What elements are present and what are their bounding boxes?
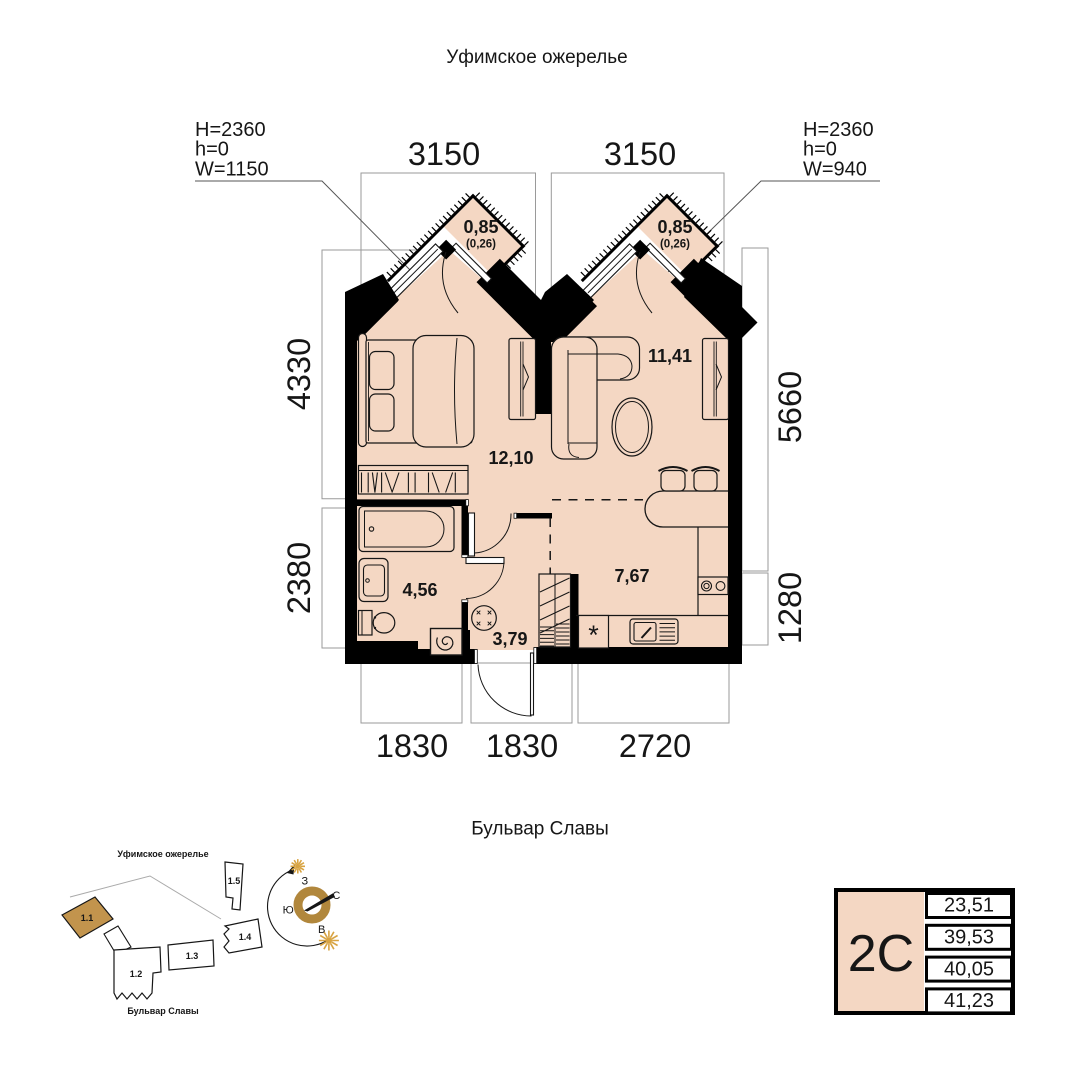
svg-text:H=2360: H=2360: [195, 119, 266, 141]
svg-text:Уфимское ожерелье: Уфимское ожерелье: [446, 47, 628, 68]
svg-text:(0,26): (0,26): [466, 239, 496, 251]
svg-text:39,53: 39,53: [944, 927, 994, 949]
svg-text:1830: 1830: [486, 728, 558, 764]
svg-text:3,79: 3,79: [492, 629, 527, 649]
svg-text:Бульвар Славы: Бульвар Славы: [127, 1006, 199, 1016]
svg-text:12,10: 12,10: [488, 448, 533, 468]
svg-text:2С: 2С: [848, 925, 914, 983]
svg-text:h=0: h=0: [195, 139, 229, 161]
svg-text:11,41: 11,41: [648, 346, 692, 366]
svg-text:*: *: [588, 620, 599, 650]
svg-text:3150: 3150: [604, 136, 676, 172]
svg-text:H=2360: H=2360: [803, 119, 874, 141]
svg-text:Уфимское ожерелье: Уфимское ожерелье: [117, 849, 208, 859]
svg-text:С: С: [332, 890, 340, 902]
svg-text:5660: 5660: [772, 371, 808, 443]
svg-text:В: В: [318, 924, 325, 936]
svg-text:1830: 1830: [376, 728, 448, 764]
svg-text:23,51: 23,51: [944, 895, 994, 917]
svg-text:(0,26): (0,26): [660, 239, 690, 251]
svg-text:0,85: 0,85: [657, 217, 692, 237]
svg-text:1.1: 1.1: [81, 913, 94, 923]
svg-text:40,05: 40,05: [944, 958, 994, 980]
svg-text:1.2: 1.2: [130, 969, 143, 979]
svg-text:4330: 4330: [281, 338, 317, 410]
svg-text:41,23: 41,23: [944, 990, 994, 1012]
svg-text:1280: 1280: [772, 572, 808, 644]
svg-text:Бульвар Славы: Бульвар Славы: [471, 819, 609, 840]
svg-text:4,56: 4,56: [402, 580, 437, 600]
svg-text:З: З: [301, 876, 308, 888]
svg-text:W=1150: W=1150: [195, 159, 269, 181]
svg-text:1.4: 1.4: [239, 932, 252, 942]
svg-text:1.5: 1.5: [228, 876, 241, 886]
svg-text:2380: 2380: [281, 542, 317, 614]
svg-text:0,85: 0,85: [463, 217, 498, 237]
svg-text:3150: 3150: [408, 136, 480, 172]
svg-text:7,67: 7,67: [614, 566, 649, 586]
svg-text:h=0: h=0: [803, 139, 837, 161]
svg-text:2720: 2720: [619, 728, 691, 764]
svg-text:W=940: W=940: [803, 159, 867, 181]
svg-text:Ю: Ю: [283, 905, 294, 917]
svg-text:1.3: 1.3: [186, 951, 199, 961]
